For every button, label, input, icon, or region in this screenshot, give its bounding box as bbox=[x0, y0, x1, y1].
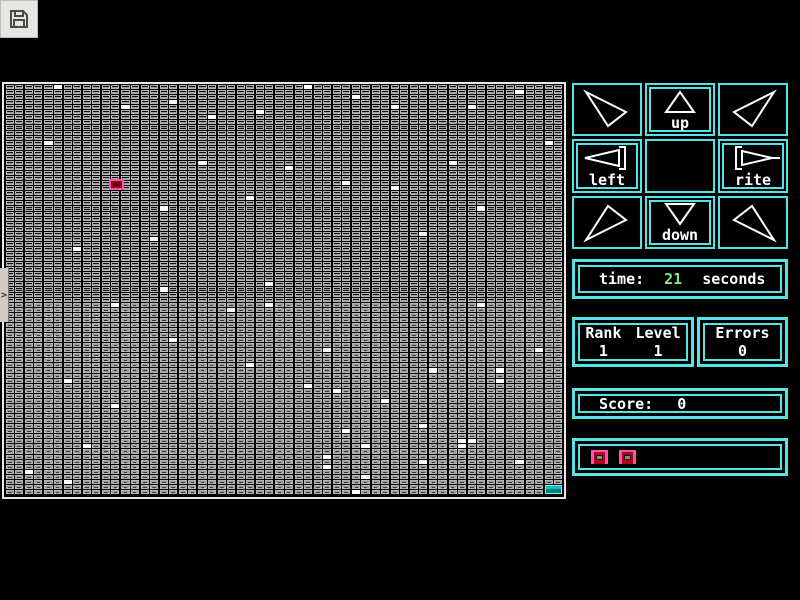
cell-group bbox=[487, 282, 504, 286]
grid-cell bbox=[265, 206, 273, 210]
grid-cell bbox=[352, 303, 360, 307]
grid-cell bbox=[535, 105, 543, 109]
cell-group bbox=[198, 247, 215, 251]
grid-cell bbox=[169, 272, 177, 276]
cell-group bbox=[314, 293, 331, 297]
cell-group bbox=[83, 363, 100, 367]
grid-cell bbox=[410, 333, 418, 337]
grid-cell bbox=[150, 85, 158, 89]
cell-group bbox=[179, 368, 196, 372]
cell-group bbox=[179, 262, 196, 266]
grid-cell bbox=[237, 115, 245, 119]
cell-group bbox=[506, 333, 523, 337]
grid-cell bbox=[179, 105, 187, 109]
cell-group bbox=[333, 100, 350, 104]
grid-cell bbox=[64, 85, 72, 89]
grid-cell bbox=[275, 282, 283, 286]
cell-group bbox=[333, 181, 350, 185]
grid-cell bbox=[506, 368, 514, 372]
grid-cell bbox=[111, 298, 119, 302]
cell-group bbox=[526, 171, 543, 175]
cell-group bbox=[160, 105, 177, 109]
grid-cell bbox=[44, 171, 52, 175]
grid-cell bbox=[179, 348, 187, 352]
grid-cell bbox=[34, 95, 42, 99]
grid-cell bbox=[285, 141, 293, 145]
grid-cell bbox=[535, 186, 543, 190]
grid-cell bbox=[342, 293, 350, 297]
grid-cell bbox=[410, 125, 418, 129]
cell-group bbox=[468, 115, 485, 119]
grid-cell bbox=[468, 95, 476, 99]
grid-cell bbox=[419, 105, 427, 109]
grid-cell bbox=[54, 206, 62, 210]
grid-cell bbox=[25, 343, 33, 347]
grid-cell bbox=[323, 358, 331, 362]
cell-group bbox=[256, 343, 273, 347]
grid-cell bbox=[160, 368, 168, 372]
grid-cell bbox=[6, 125, 14, 129]
grid-cell bbox=[285, 318, 293, 322]
grid-cell bbox=[429, 105, 437, 109]
grid-cell bbox=[15, 141, 23, 145]
cell-group bbox=[102, 293, 119, 297]
grid-cell bbox=[54, 217, 62, 221]
grid-cell bbox=[333, 262, 341, 266]
cell-group bbox=[121, 131, 138, 135]
grid-cell bbox=[535, 298, 543, 302]
cell-group bbox=[314, 252, 331, 256]
grid-cell bbox=[83, 353, 91, 357]
grid-cell bbox=[208, 90, 216, 94]
grid-cell bbox=[34, 181, 42, 185]
grid-cell bbox=[323, 232, 331, 236]
grid-cell bbox=[429, 287, 437, 291]
cell-group bbox=[218, 232, 235, 236]
grid-cell bbox=[275, 368, 283, 372]
grid-cell bbox=[198, 222, 206, 226]
grid-cell bbox=[381, 262, 389, 266]
grid-cell bbox=[34, 232, 42, 236]
grid-cell bbox=[429, 120, 437, 124]
cell-group bbox=[468, 343, 485, 347]
grid-cell bbox=[92, 136, 100, 140]
grid-cell bbox=[208, 201, 216, 205]
grid-cell bbox=[169, 363, 177, 367]
grid-cell bbox=[304, 272, 312, 276]
grid-cell bbox=[246, 247, 254, 251]
grid-cell bbox=[34, 323, 42, 327]
grid-cell bbox=[188, 166, 196, 170]
cell-group bbox=[449, 222, 466, 226]
cell-group bbox=[410, 161, 427, 165]
cell-group bbox=[218, 328, 235, 332]
cell-group bbox=[198, 338, 215, 342]
grid-cell bbox=[342, 141, 350, 145]
grid-cell bbox=[83, 222, 91, 226]
grid-cell bbox=[304, 262, 312, 266]
grid-cell bbox=[246, 293, 254, 297]
grid-cell bbox=[323, 318, 331, 322]
grid-cell bbox=[83, 358, 91, 362]
grid-cell bbox=[342, 181, 350, 185]
cell-group bbox=[141, 166, 158, 170]
cell-group bbox=[468, 125, 485, 129]
grid-cell bbox=[323, 252, 331, 256]
grid-cell bbox=[526, 262, 534, 266]
grid-cell bbox=[64, 136, 72, 140]
grid-cell bbox=[188, 151, 196, 155]
cell-group bbox=[333, 191, 350, 195]
cell-group bbox=[449, 115, 466, 119]
grid-cell bbox=[342, 358, 350, 362]
cell-group bbox=[25, 151, 42, 155]
grid-cell bbox=[506, 298, 514, 302]
grid-cell bbox=[179, 242, 187, 246]
grid-cell bbox=[526, 125, 534, 129]
cell-group bbox=[121, 262, 138, 266]
grid-cell bbox=[410, 282, 418, 286]
cell-group bbox=[449, 308, 466, 312]
cell-group bbox=[160, 136, 177, 140]
grid-cell bbox=[169, 212, 177, 216]
cell-group bbox=[179, 171, 196, 175]
grid-cell bbox=[246, 363, 254, 367]
grid-cell bbox=[198, 141, 206, 145]
grid-cell bbox=[391, 100, 399, 104]
grid-cell bbox=[487, 363, 495, 367]
grid-cell bbox=[361, 257, 369, 261]
grid-cell bbox=[218, 151, 226, 155]
grid-cell bbox=[526, 338, 534, 342]
grid-cell bbox=[323, 115, 331, 119]
cell-group bbox=[545, 212, 562, 216]
cell-group bbox=[256, 358, 273, 362]
grid-cell bbox=[256, 227, 264, 231]
cell-group bbox=[449, 186, 466, 190]
grid-cell bbox=[458, 201, 466, 205]
grid-cell bbox=[554, 115, 562, 119]
grid-cell bbox=[526, 257, 534, 261]
grid-cell bbox=[44, 277, 52, 281]
grid-cell bbox=[150, 176, 158, 180]
grid-cell bbox=[487, 166, 495, 170]
grid-cell bbox=[54, 125, 62, 129]
grid-cell bbox=[477, 186, 485, 190]
grid-cell bbox=[314, 338, 322, 342]
grid-cell bbox=[188, 237, 196, 241]
cell-group bbox=[64, 277, 81, 281]
grid-cell bbox=[246, 242, 254, 246]
grid-cell bbox=[285, 196, 293, 200]
grid-cell bbox=[111, 212, 119, 216]
cell-group bbox=[391, 186, 408, 190]
grid-cell bbox=[131, 318, 139, 322]
grid-cell bbox=[342, 333, 350, 337]
grid-cell bbox=[25, 206, 33, 210]
cell-group bbox=[526, 368, 543, 372]
grid-cell bbox=[506, 166, 514, 170]
cell-group bbox=[6, 100, 23, 104]
grid-cell bbox=[160, 212, 168, 216]
cell-group bbox=[314, 95, 331, 99]
grid-cell bbox=[64, 353, 72, 357]
grid-cell bbox=[515, 217, 523, 221]
grid-cell bbox=[34, 374, 42, 378]
cell-group bbox=[352, 151, 369, 155]
grid-cell bbox=[285, 105, 293, 109]
grid-cell bbox=[535, 277, 543, 281]
grid-cell bbox=[400, 201, 408, 205]
grid-cell bbox=[160, 303, 168, 307]
grid-cell bbox=[265, 151, 273, 155]
grid-cell bbox=[342, 353, 350, 357]
grid-cell bbox=[64, 166, 72, 170]
grid-cell bbox=[169, 110, 177, 114]
grid-cell bbox=[526, 313, 534, 317]
grid-cell bbox=[304, 95, 312, 99]
cell-group bbox=[487, 338, 504, 342]
cell-group bbox=[64, 217, 81, 221]
cell-group bbox=[314, 151, 331, 155]
grid-cell bbox=[314, 85, 322, 89]
grid-cell bbox=[438, 217, 446, 221]
grid-cell bbox=[246, 227, 254, 231]
grid-cell bbox=[372, 277, 380, 281]
grid-cell bbox=[545, 100, 553, 104]
cell-group bbox=[237, 242, 254, 246]
grid-cell bbox=[25, 298, 33, 302]
cell-group bbox=[102, 105, 119, 109]
grid-cell bbox=[372, 151, 380, 155]
grid-cell bbox=[256, 161, 264, 165]
grid-cell bbox=[285, 247, 293, 251]
grid-cell bbox=[121, 115, 129, 119]
grid-cell bbox=[410, 222, 418, 226]
grid-cell bbox=[554, 141, 562, 145]
grid-cell bbox=[487, 227, 495, 231]
cell-group bbox=[372, 151, 389, 155]
grid-cell bbox=[179, 227, 187, 231]
grid-cell bbox=[449, 90, 457, 94]
grid-cell bbox=[25, 363, 33, 367]
cell-group bbox=[372, 100, 389, 104]
grid-cell bbox=[361, 115, 369, 119]
cell-group bbox=[121, 242, 138, 246]
grid-cell bbox=[188, 303, 196, 307]
cell-group bbox=[314, 348, 331, 352]
grid-cell bbox=[381, 333, 389, 337]
grid-cell bbox=[515, 196, 523, 200]
grid-cell bbox=[198, 115, 206, 119]
grid-cell bbox=[381, 222, 389, 226]
grid-cell bbox=[246, 267, 254, 271]
grid-cell bbox=[6, 374, 14, 378]
grid-cell bbox=[265, 242, 273, 246]
grid-cell bbox=[352, 267, 360, 271]
grid-cell bbox=[121, 166, 129, 170]
grid-cell bbox=[25, 333, 33, 337]
grid-cell bbox=[496, 191, 504, 195]
cell-group bbox=[449, 298, 466, 302]
panel-handle[interactable]: > bbox=[0, 268, 9, 322]
cell-group bbox=[102, 146, 119, 150]
grid-cell bbox=[342, 90, 350, 94]
cell-group bbox=[6, 242, 23, 246]
cell-group bbox=[333, 328, 350, 332]
cell-group bbox=[545, 141, 562, 145]
grid-cell bbox=[314, 257, 322, 261]
grid-cell bbox=[237, 303, 245, 307]
grid-cell bbox=[468, 298, 476, 302]
grid-cell bbox=[333, 333, 341, 337]
cell-group bbox=[372, 333, 389, 337]
grid-cell bbox=[372, 257, 380, 261]
grid-cell bbox=[275, 298, 283, 302]
grid-cell bbox=[429, 141, 437, 145]
grid-cell bbox=[102, 323, 110, 327]
grid-cell bbox=[237, 282, 245, 286]
grid-cell bbox=[218, 196, 226, 200]
grid-cell bbox=[237, 105, 245, 109]
grid-cell bbox=[372, 191, 380, 195]
grid-cell bbox=[372, 181, 380, 185]
grid-cell bbox=[198, 267, 206, 271]
grid-cell bbox=[34, 156, 42, 160]
grid-cell bbox=[342, 115, 350, 119]
grid-cell bbox=[246, 232, 254, 236]
grid-cell bbox=[515, 131, 523, 135]
cell-group bbox=[121, 227, 138, 231]
grid-cell bbox=[381, 151, 389, 155]
cell-group bbox=[198, 105, 215, 109]
grid-cell bbox=[419, 171, 427, 175]
grid-cell bbox=[410, 110, 418, 114]
grid-cell bbox=[477, 368, 485, 372]
cell-group bbox=[295, 277, 312, 281]
grid-cell bbox=[515, 252, 523, 256]
grid-cell bbox=[506, 328, 514, 332]
grid-cell bbox=[429, 277, 437, 281]
cell-group bbox=[256, 217, 273, 221]
cell-group bbox=[526, 161, 543, 165]
grid-cell bbox=[429, 308, 437, 312]
grid-cell bbox=[381, 212, 389, 216]
cell-group bbox=[295, 206, 312, 210]
grid-cell bbox=[218, 131, 226, 135]
cell-group bbox=[121, 282, 138, 286]
grid-cell bbox=[487, 323, 495, 327]
cell-group bbox=[526, 252, 543, 256]
grid-cell bbox=[438, 110, 446, 114]
cell-group bbox=[545, 110, 562, 114]
cell-group bbox=[429, 343, 446, 347]
grid-cell bbox=[361, 368, 369, 372]
grid-cell bbox=[246, 171, 254, 175]
grid-cell bbox=[188, 353, 196, 357]
grid-cell bbox=[25, 287, 33, 291]
grid-cell bbox=[208, 186, 216, 190]
grid-cell bbox=[438, 201, 446, 205]
grid-cell bbox=[121, 232, 129, 236]
grid-cell bbox=[92, 105, 100, 109]
grid-cell bbox=[246, 323, 254, 327]
grid-cell bbox=[391, 272, 399, 276]
cell-group bbox=[526, 303, 543, 307]
grid-cell bbox=[92, 115, 100, 119]
cell-group bbox=[352, 181, 369, 185]
grid-cell bbox=[295, 100, 303, 104]
grid-cell bbox=[419, 222, 427, 226]
cell-group bbox=[102, 125, 119, 129]
cell-group bbox=[468, 277, 485, 281]
cell-group bbox=[429, 201, 446, 205]
grid-cell bbox=[295, 161, 303, 165]
grid-cell bbox=[73, 115, 81, 119]
grid-cell bbox=[64, 171, 72, 175]
cell-group bbox=[141, 343, 158, 347]
cell-group bbox=[121, 368, 138, 372]
cell-group bbox=[237, 247, 254, 251]
grid-cell bbox=[54, 120, 62, 124]
cell-group bbox=[102, 318, 119, 322]
save-button[interactable] bbox=[0, 0, 38, 38]
cell-group bbox=[333, 343, 350, 347]
grid-cell bbox=[361, 252, 369, 256]
grid-cell bbox=[73, 262, 81, 266]
cell-group bbox=[449, 252, 466, 256]
grid-cell bbox=[429, 125, 437, 129]
grid-cell bbox=[391, 353, 399, 357]
grid-cell bbox=[111, 110, 119, 114]
grid-cell bbox=[438, 247, 446, 251]
cell-group bbox=[526, 100, 543, 104]
cell-group bbox=[275, 227, 292, 231]
grid-cell bbox=[333, 90, 341, 94]
grid-cell bbox=[554, 156, 562, 160]
grid-cell bbox=[237, 146, 245, 150]
cell-group bbox=[83, 308, 100, 312]
grid-cell bbox=[515, 242, 523, 246]
grid-cell bbox=[535, 242, 543, 246]
grid-cell bbox=[381, 131, 389, 135]
cell-group bbox=[121, 161, 138, 165]
cell-group bbox=[218, 282, 235, 286]
cell-group bbox=[506, 171, 523, 175]
grid-cell bbox=[83, 141, 91, 145]
cell-group bbox=[314, 343, 331, 347]
grid-cell bbox=[256, 206, 264, 210]
cell-group bbox=[218, 191, 235, 195]
grid-cell bbox=[419, 333, 427, 337]
grid-cell bbox=[419, 358, 427, 362]
grid-cell bbox=[218, 303, 226, 307]
grid-cell bbox=[237, 201, 245, 205]
grid-cell bbox=[25, 267, 33, 271]
grid-cell bbox=[304, 282, 312, 286]
grid-cell bbox=[92, 303, 100, 307]
cell-group bbox=[506, 287, 523, 291]
grid-cell bbox=[64, 186, 72, 190]
cell-group bbox=[141, 348, 158, 352]
grid-cell bbox=[121, 146, 129, 150]
cell-group bbox=[256, 328, 273, 332]
grid-cell bbox=[208, 232, 216, 236]
grid-cell bbox=[92, 95, 100, 99]
grid-cell bbox=[468, 227, 476, 231]
cell-group bbox=[160, 222, 177, 226]
grid-cell bbox=[477, 151, 485, 155]
